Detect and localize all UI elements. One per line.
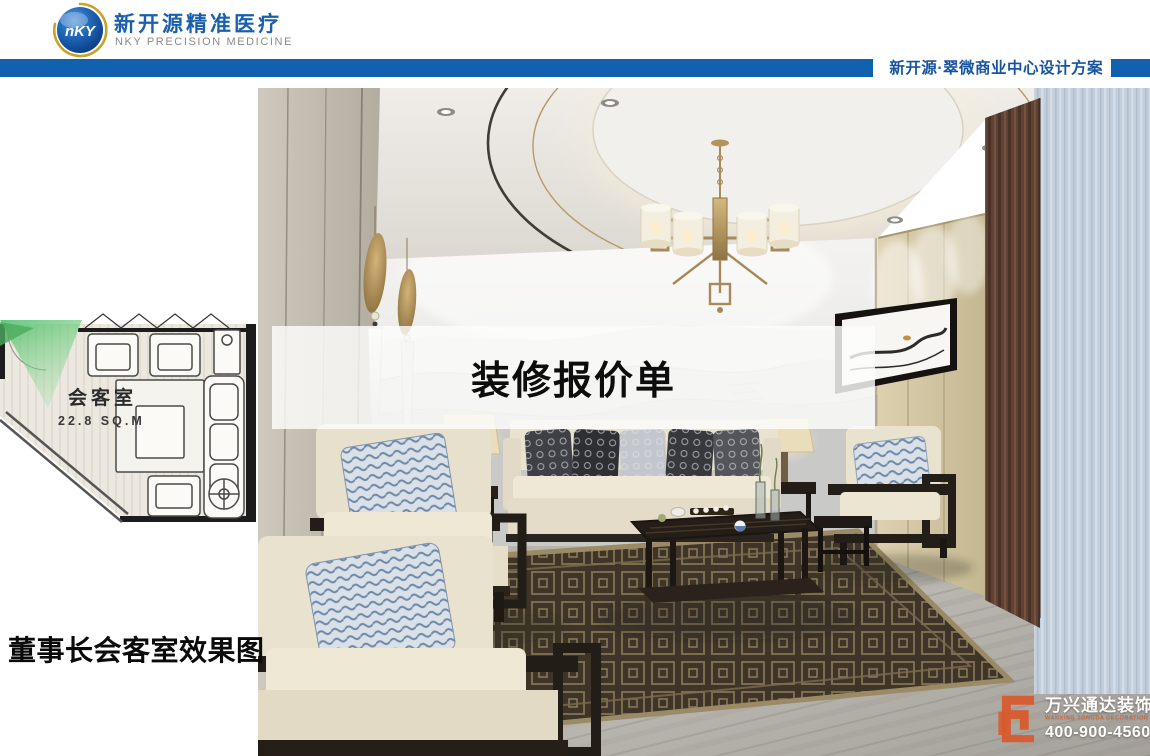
project-title-bar: 新开源·翠微商业中心设计方案	[0, 59, 1150, 77]
decorator-watermark: 万兴通达装饰 WANXING TONGDA DECORATION 400-900…	[998, 694, 1150, 744]
brand-name-en: NKY PRECISION MEDICINE	[115, 36, 293, 48]
room-name-label: 会客室	[68, 386, 137, 409]
title-bar-right-segment	[1111, 59, 1150, 77]
page-header: nKY 新开源精准医疗 NKY PRECISION MEDICINE	[0, 0, 1150, 59]
watermark-phone: 400-900-4560	[1045, 725, 1150, 741]
title-bar-left-segment	[0, 59, 873, 77]
watermark-company-cn: 万兴通达装饰	[1045, 697, 1150, 714]
nky-logo-icon: nKY	[48, 2, 112, 58]
quote-banner-title: 装修报价单	[471, 350, 676, 406]
floor-plan: 会客室 22.8 SQ.M	[0, 308, 258, 526]
floor-plan-drawing: 会客室 22.8 SQ.M	[0, 308, 258, 526]
quote-banner: 装修报价单	[272, 326, 875, 429]
rendering-caption: 董事长会客室效果图	[8, 629, 265, 669]
sheer-curtain	[1034, 88, 1150, 694]
brown-curtain	[985, 98, 1040, 628]
project-title: 新开源·翠微商业中心设计方案	[889, 59, 1103, 77]
sofa-pillows	[524, 428, 761, 481]
brand-name-cn: 新开源精准医疗	[114, 8, 282, 38]
watermark-company-en: WANXING TONGDA DECORATION	[1045, 716, 1150, 722]
room-area-label: 22.8 SQ.M	[58, 414, 145, 428]
decorator-logo-icon	[998, 694, 1038, 744]
logo-mark-text: nKY	[65, 23, 97, 40]
